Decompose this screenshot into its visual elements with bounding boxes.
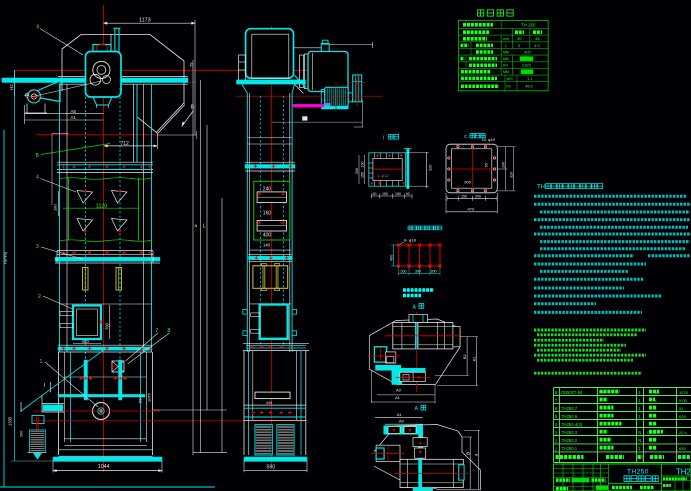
svg-text:TH250.7: TH250.7: [561, 406, 578, 411]
svg-text:4: 4: [555, 422, 558, 427]
svg-text:150: 150: [461, 194, 467, 198]
svg-text:A1: A1: [397, 412, 403, 417]
svg-text:φ18: φ18: [488, 138, 495, 142]
svg-text:320: 320: [428, 165, 432, 171]
svg-text:A9: A9: [71, 109, 77, 114]
svg-text:3: 3: [36, 244, 39, 250]
svg-text:635: 635: [679, 414, 686, 419]
svg-text:7: 7: [555, 398, 558, 403]
svg-text:GB5027-84: GB5027-84: [561, 390, 583, 395]
svg-text:90: 90: [373, 192, 377, 196]
svg-text:400: 400: [263, 232, 272, 238]
svg-text:A1: A1: [71, 115, 77, 120]
svg-text:240: 240: [263, 186, 272, 192]
svg-text:590: 590: [267, 464, 276, 470]
svg-text:4: 4: [36, 175, 39, 181]
svg-text:320: 320: [510, 172, 514, 178]
svg-text:B1: B1: [472, 356, 476, 361]
svg-text:TH250.1: TH250.1: [561, 446, 578, 451]
svg-text:B: B: [36, 153, 40, 159]
svg-text:1: 1: [555, 446, 558, 451]
svg-text:1120: 1120: [96, 204, 107, 210]
svg-text:A: A: [415, 406, 419, 412]
svg-text:H(mm): H(mm): [3, 251, 8, 264]
svg-text:200: 200: [501, 162, 505, 168]
svg-text:M/S: M/S: [507, 77, 514, 81]
svg-text:200: 200: [431, 269, 437, 273]
svg-text:150: 150: [360, 162, 364, 168]
svg-text:A1: A1: [395, 395, 401, 400]
svg-text:3: 3: [555, 430, 558, 435]
svg-text:TH250: TH250: [627, 469, 649, 476]
svg-text:8: 8: [555, 390, 558, 395]
svg-text:I: I: [383, 136, 384, 142]
svg-text:5: 5: [555, 414, 558, 419]
svg-text:B: B: [191, 105, 195, 111]
svg-text:635: 635: [679, 446, 686, 451]
svg-text:20.4: 20.4: [679, 430, 688, 435]
svg-text:TH250.2: TH250.2: [561, 438, 578, 443]
svg-text:N: N: [638, 430, 641, 435]
svg-text:2: 2: [38, 294, 41, 300]
svg-text:MM: MM: [503, 57, 509, 61]
svg-text:B2: B2: [463, 354, 467, 359]
svg-text:M: M: [655, 390, 658, 395]
svg-text:MM: MM: [503, 50, 509, 54]
svg-text:φ12: φ12: [382, 173, 390, 178]
svg-text:MM: MM: [503, 70, 509, 74]
svg-text:160: 160: [263, 210, 272, 216]
svg-text:1070: 1070: [147, 392, 152, 402]
svg-text:180: 180: [53, 204, 58, 211]
svg-text:90: 90: [406, 192, 410, 196]
svg-text:712: 712: [121, 141, 130, 147]
svg-text:30: 30: [517, 36, 522, 41]
svg-text:4.5: 4.5: [534, 43, 540, 48]
svg-text:1335: 1335: [8, 416, 13, 426]
svg-text:51: 51: [679, 406, 684, 411]
svg-text:450: 450: [82, 339, 90, 344]
svg-text:9.05: 9.05: [679, 398, 688, 403]
svg-text:TH250.6: TH250.6: [561, 414, 578, 419]
svg-text:A9: A9: [396, 388, 402, 393]
svg-text:B: B: [465, 452, 470, 455]
svg-text:A9: A9: [399, 419, 405, 424]
svg-text:1173: 1173: [139, 18, 151, 24]
svg-text:TH2: TH2: [676, 468, 691, 477]
svg-text:L: L: [505, 44, 507, 48]
svg-text:2: 2: [555, 438, 558, 443]
svg-text:200: 200: [475, 194, 481, 198]
svg-text:mm: mm: [503, 37, 509, 41]
svg-text:20B: 20B: [599, 390, 606, 395]
svg-text:6: 6: [555, 406, 558, 411]
svg-text:L: L: [203, 224, 206, 230]
svg-text:900: 900: [464, 179, 471, 184]
svg-text:200: 200: [20, 431, 24, 437]
svg-text:6: 6: [37, 25, 40, 31]
svg-text:N: N: [638, 438, 641, 443]
svg-text:A: A: [413, 305, 417, 311]
svg-text:150: 150: [395, 192, 401, 196]
svg-text:445: 445: [266, 401, 272, 405]
svg-text:65: 65: [484, 163, 488, 167]
svg-text:150: 150: [382, 192, 388, 196]
svg-text:TH250.4(3): TH250.4(3): [561, 422, 583, 427]
svg-text:1: 1: [40, 359, 43, 365]
svg-text:1.1: 1.1: [527, 76, 533, 81]
svg-text:H2: H2: [9, 84, 14, 90]
svg-text:300: 300: [415, 269, 421, 273]
svg-text:48: 48: [535, 36, 540, 41]
svg-text:300: 300: [355, 168, 359, 174]
svg-text:r/m: r/m: [506, 85, 511, 89]
svg-text:550: 550: [138, 396, 143, 403]
svg-text:400: 400: [524, 49, 531, 54]
svg-text:400: 400: [389, 255, 393, 261]
svg-text:760: 760: [104, 322, 109, 330]
svg-text:TH 250: TH 250: [521, 23, 536, 28]
svg-text:KN: KN: [503, 64, 508, 68]
svg-text:≥320: ≥320: [522, 63, 532, 68]
svg-text:10-: 10-: [482, 138, 488, 142]
svg-text:200: 200: [401, 269, 407, 273]
svg-text:470: 470: [468, 206, 475, 211]
svg-text:1076: 1076: [679, 390, 689, 395]
svg-text:TH250.3: TH250.3: [561, 430, 578, 435]
svg-text:Q235-A: Q235-A: [647, 431, 661, 435]
svg-text:150: 150: [360, 172, 364, 178]
svg-text:TH: TH: [537, 185, 545, 191]
svg-text:C: C: [464, 134, 468, 140]
svg-text:140: 140: [263, 242, 271, 247]
svg-text:φ18: φ18: [409, 237, 417, 242]
svg-text:1044: 1044: [98, 464, 110, 470]
svg-text:a: a: [195, 223, 198, 228]
svg-text:48.5: 48.5: [525, 84, 534, 89]
